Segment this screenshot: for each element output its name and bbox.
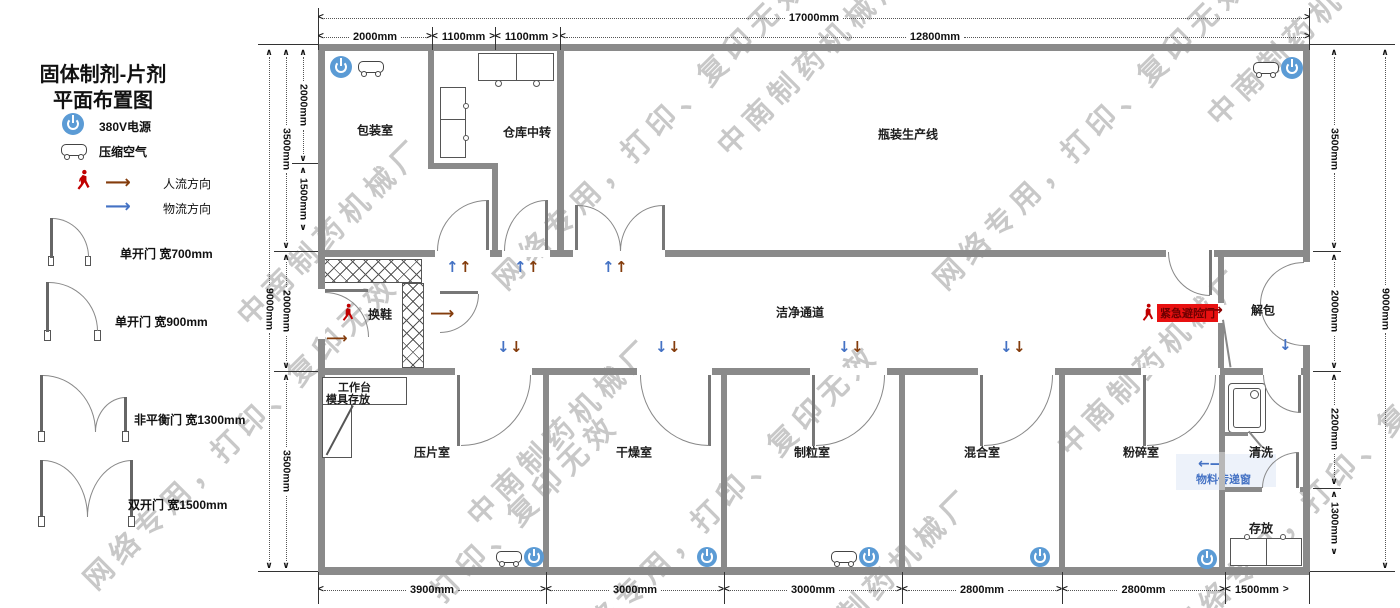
legend-air-label: 压缩空气 (99, 143, 147, 160)
legend-door700-label: 单开门 宽700mm (120, 245, 213, 262)
wall (1059, 375, 1065, 567)
compressed-air-icon (61, 144, 87, 156)
cabinet-knob (463, 103, 469, 109)
cabinet-leg (533, 80, 540, 87)
dim-top-2000: <2000mm> (318, 30, 432, 44)
material-flow-arrow: ↓ (1000, 340, 1013, 355)
door-opening (637, 368, 712, 375)
power-icon (697, 547, 717, 567)
material-flow-arrow: ↓ (497, 340, 510, 355)
material-flow-arrow: ↓ (1279, 338, 1292, 353)
dim-tick (258, 571, 318, 572)
material-flow-arrow: ↓ (655, 340, 668, 355)
door-opening (318, 289, 325, 339)
room-label-warehouse-transfer: 仓库中转 (503, 124, 551, 141)
cabinet-knob (1280, 534, 1286, 540)
dim-left-3500b: ∧3500mm∨ (279, 373, 293, 570)
door-arc (620, 205, 663, 251)
door-arc (1263, 375, 1301, 413)
door-arc (504, 200, 546, 251)
cabinet-knob (463, 135, 469, 141)
dim-tick (274, 371, 318, 372)
person-flow-arrow: ⟶ (430, 306, 454, 323)
dim-right-2200: ∧2200mm∨ (1327, 373, 1341, 486)
compressed-air-icon (496, 551, 522, 563)
door-arc (437, 200, 487, 251)
room-label-crushing: 粉碎室 (1123, 444, 1159, 461)
material-flow-arrow: ↑ (446, 260, 459, 275)
room-label-granulation: 制粒室 (794, 444, 830, 461)
room-label-clean-corridor: 洁净通道 (776, 304, 824, 321)
dim-right-1300: ∧1300mm∨ (1327, 490, 1341, 570)
dim-bottom-2800b: <2800mm> (1062, 583, 1225, 597)
room-label-mixing: 混合室 (964, 444, 1000, 461)
person-flow-arrow: ↓ (668, 340, 681, 355)
cabinet (440, 87, 466, 158)
door-leaf (812, 375, 815, 446)
single-door-900-icon (44, 282, 102, 340)
door-opening (1263, 368, 1301, 375)
person-flow-arrow: ↑ (527, 260, 540, 275)
door-arc (1168, 252, 1210, 296)
door-opening (573, 250, 665, 257)
room-label-storage: 存放 (1249, 520, 1273, 537)
dim-left-1500: ∧1500mm∨ (296, 166, 310, 250)
wall (428, 163, 498, 169)
dim-left-2000b: ∧2000mm∨ (279, 253, 293, 370)
transfer-window-wall (1219, 452, 1225, 490)
room-label-change-shoes: 换鞋 (368, 306, 392, 323)
double-door-1500-icon (38, 460, 138, 526)
shoe-bench (402, 283, 424, 368)
person-flow-arrow: ↓ (510, 340, 523, 355)
power-icon (62, 113, 84, 135)
dim-bottom-3000b: <3000mm> (724, 583, 902, 597)
material-flow-arrow: ↑ (514, 260, 527, 275)
wall (318, 44, 1310, 51)
door-opening (435, 250, 490, 257)
legend-door900-label: 单开门 宽900mm (115, 313, 208, 330)
dim-bottom-3000a: <3000mm> (546, 583, 724, 597)
room-label-unpacking: 解包 (1251, 302, 1275, 319)
dim-left-2000: ∧2000mm∨ (296, 48, 310, 163)
single-door-700-icon (48, 218, 92, 266)
dim-tick (292, 163, 318, 164)
door-arc (578, 205, 621, 251)
dim-tick (1310, 571, 1395, 572)
wall (492, 169, 498, 250)
door-opening (455, 368, 532, 375)
door-arc (816, 375, 885, 446)
dim-left-9000: ∧9000mm∨ (262, 48, 276, 570)
shoe-bench (322, 259, 422, 283)
person-flow-arrow: ↓ (1013, 340, 1026, 355)
dim-top-12800: <12800mm> (560, 30, 1310, 44)
door-leaf (457, 375, 460, 446)
power-icon (1030, 547, 1050, 567)
door-opening (978, 368, 1055, 375)
material-flow-arrow: ↑ (602, 260, 615, 275)
person-flow-arrow: ↑ (459, 260, 472, 275)
door-arc (1260, 262, 1304, 304)
cabinet (478, 53, 554, 81)
wall (318, 567, 1310, 575)
sink (1228, 383, 1266, 433)
dim-right-2000: ∧2000mm∨ (1327, 253, 1341, 370)
floor-plan-canvas: 中南制药机械厂 网络专用，打印、复印无效 网络专用，打印、复印无效 中南制药机械… (0, 0, 1400, 608)
dim-bottom-3900: <3900mm> (318, 583, 546, 597)
wall (428, 51, 434, 168)
room-label-packaging: 包装室 (357, 122, 393, 139)
dim-tick (1310, 44, 1395, 45)
cabinet-leg (495, 80, 502, 87)
mold-storage-label: 模具存放 (326, 391, 370, 407)
dim-bottom-2800a: <2800mm> (902, 583, 1062, 597)
legend-person-flow-label: 人流方向 (163, 175, 211, 192)
dim-tick (274, 251, 318, 252)
emergency-exit-arrow: ⟶ (1200, 302, 1223, 318)
dim-right-3500: ∧3500mm∨ (1327, 48, 1341, 250)
room-label-tablet-press: 压片室 (414, 444, 450, 461)
legend-material-flow-label: 物流方向 (163, 200, 211, 217)
legend-door1500-label: 双开门 宽1500mm (128, 496, 227, 513)
wall (543, 375, 549, 567)
dim-tick (258, 44, 318, 45)
dim-left-3500a: ∧3500mm∨ (279, 48, 293, 250)
person-icon (72, 168, 94, 192)
wall (1222, 432, 1248, 436)
room-label-washing: 清洗 (1249, 444, 1273, 461)
person-flow-arrow: ⟶ (326, 331, 348, 346)
door-leaf (980, 375, 983, 446)
dim-right-9000: ∧9000mm∨ (1378, 48, 1392, 570)
power-icon (330, 56, 352, 78)
legend-power-label: 380V电源 (99, 118, 151, 135)
storage-cabinet (1230, 538, 1302, 566)
power-icon (1281, 57, 1303, 79)
person-icon (1138, 302, 1157, 323)
dim-top-1100b: <1100mm> (495, 30, 560, 44)
person-flow-arrow: ⟶ (105, 174, 131, 192)
door-opening (1303, 262, 1310, 345)
door-opening (1141, 368, 1220, 375)
wall (721, 375, 727, 567)
compressed-air-icon (831, 551, 857, 563)
door-leaf (1143, 375, 1146, 446)
power-icon (524, 547, 544, 567)
person-flow-arrow: ↓ (851, 340, 864, 355)
door-opening (502, 250, 550, 257)
dim-top-1100a: <1100mm> (432, 30, 495, 44)
legend-door1300-label: 非平衡门 宽1300mm (134, 411, 245, 428)
material-flow-arrow: ↓ (838, 340, 851, 355)
drawing-title-line1: 固体制剂-片剂 (40, 58, 167, 87)
unbalanced-door-1300-icon (38, 375, 134, 441)
wall (899, 375, 905, 567)
material-flow-arrow: ⟶ (105, 198, 131, 216)
room-label-bottling-line: 瓶装生产线 (878, 126, 938, 143)
compressed-air-icon (1253, 62, 1279, 74)
door-arc (640, 375, 709, 446)
compressed-air-icon (358, 61, 384, 73)
wall (557, 51, 564, 250)
dim-bottom-1500: <1500mm> (1225, 583, 1310, 597)
door-opening (810, 368, 887, 375)
door-arc (984, 375, 1053, 446)
power-icon (859, 547, 879, 567)
door-arc (461, 375, 531, 446)
door-arc (1147, 375, 1216, 446)
person-flow-arrow: ↑ (615, 260, 628, 275)
room-label-drying: 干燥室 (616, 444, 652, 461)
drawing-title-line2: 平面布置图 (53, 84, 153, 113)
power-icon (1197, 549, 1217, 569)
person-icon (338, 302, 357, 323)
dim-top-total: <17000mm> (318, 11, 1310, 25)
